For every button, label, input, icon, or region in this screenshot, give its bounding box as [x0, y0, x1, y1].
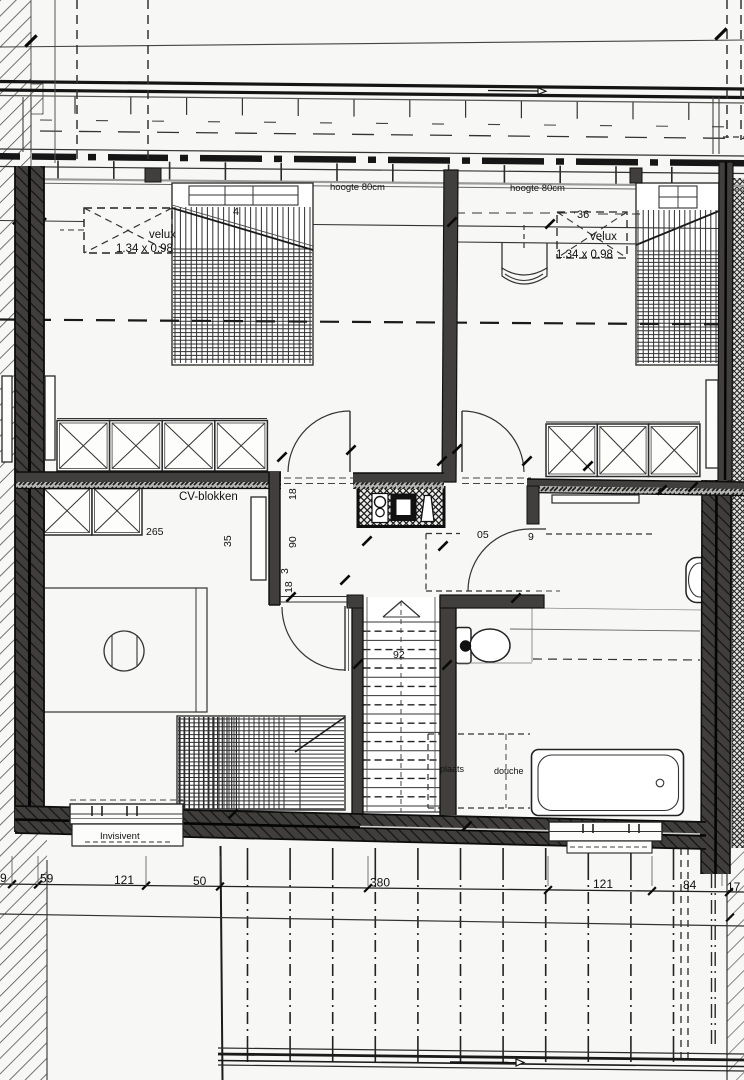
svg-text:CV-blokken: CV-blokken — [179, 491, 238, 503]
svg-text:hoogte 80cm: hoogte 80cm — [510, 183, 565, 194]
svg-text:9: 9 — [528, 531, 534, 543]
svg-text:1.34 x 0.98: 1.34 x 0.98 — [556, 249, 613, 261]
svg-text:18: 18 — [283, 581, 295, 593]
svg-text:douche: douche — [494, 766, 524, 776]
svg-text:velux: velux — [149, 229, 176, 241]
svg-text:84: 84 — [683, 878, 697, 892]
svg-text:17: 17 — [727, 880, 741, 894]
svg-text:18: 18 — [287, 488, 299, 500]
svg-text:1.34 x 0.98: 1.34 x 0.98 — [116, 243, 173, 255]
svg-text:plaats: plaats — [440, 764, 465, 774]
svg-text:velux: velux — [590, 231, 617, 243]
svg-text:59: 59 — [40, 872, 54, 886]
svg-text:05: 05 — [477, 529, 489, 541]
svg-text:265: 265 — [146, 526, 164, 538]
svg-text:35: 35 — [222, 535, 234, 547]
svg-text:36: 36 — [577, 209, 589, 221]
svg-text:4: 4 — [233, 206, 239, 218]
svg-text:92: 92 — [393, 649, 405, 661]
svg-text:hoogte 80cm: hoogte 80cm — [330, 182, 385, 193]
svg-text:90: 90 — [287, 536, 299, 548]
svg-text:3: 3 — [279, 568, 291, 574]
svg-text:121: 121 — [593, 877, 613, 891]
svg-text:50: 50 — [193, 874, 207, 888]
svg-text:Invisivent: Invisivent — [100, 831, 140, 842]
svg-text:380: 380 — [370, 876, 390, 890]
svg-text:9: 9 — [0, 871, 7, 885]
svg-text:121: 121 — [114, 873, 134, 887]
